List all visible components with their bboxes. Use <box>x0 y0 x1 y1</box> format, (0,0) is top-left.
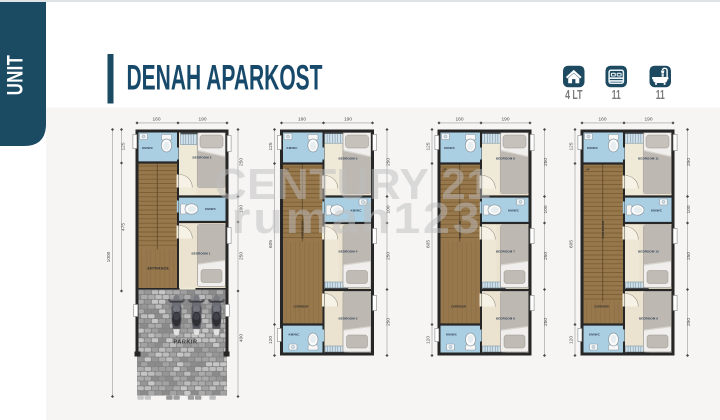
svg-text:120: 120 <box>426 336 432 344</box>
svg-text:CORRIDOR: CORRIDOR <box>594 305 609 309</box>
svg-text:250: 250 <box>686 158 692 166</box>
svg-text:190: 190 <box>344 117 352 123</box>
svg-text:KM/WC: KM/WC <box>289 333 301 337</box>
svg-text:100: 100 <box>686 205 692 213</box>
svg-text:4 LT: 4 LT <box>565 89 583 103</box>
svg-text:CORRIDOR: CORRIDOR <box>451 305 466 309</box>
svg-text:PARKIR: PARKIR <box>173 340 197 346</box>
svg-text:KM/WC: KM/WC <box>508 209 520 213</box>
svg-text:BEDROOM 7: BEDROOM 7 <box>496 250 515 254</box>
svg-text:160: 160 <box>152 117 160 123</box>
svg-text:KM/WC: KM/WC <box>287 146 299 150</box>
svg-text:BEDROOM 10: BEDROOM 10 <box>638 250 659 254</box>
svg-text:605: 605 <box>569 240 575 248</box>
svg-text:250: 250 <box>386 318 392 326</box>
svg-text:250: 250 <box>239 252 245 260</box>
svg-text:125: 125 <box>426 142 432 150</box>
svg-text:ENTRANCE: ENTRANCE <box>147 267 169 271</box>
svg-text:DENAH APARKOST: DENAH APARKOST <box>127 59 323 98</box>
svg-text:100: 100 <box>543 205 549 213</box>
svg-text:125: 125 <box>121 142 127 150</box>
svg-text:11: 11 <box>612 88 621 102</box>
svg-text:120: 120 <box>268 336 274 344</box>
svg-text:CORRIDOR: CORRIDOR <box>601 220 605 239</box>
svg-text:BEDROOM 2: BEDROOM 2 <box>192 156 211 160</box>
svg-text:11: 11 <box>656 88 665 102</box>
svg-text:1000: 1000 <box>106 251 112 262</box>
svg-text:KM/WC: KM/WC <box>444 146 456 150</box>
svg-text:CORRIDOR: CORRIDOR <box>294 305 309 309</box>
svg-text:250: 250 <box>543 318 549 326</box>
svg-text:UNIT: UNIT <box>3 55 28 95</box>
svg-text:250: 250 <box>686 252 692 260</box>
svg-text:BEDROOM 9: BEDROOM 9 <box>639 317 658 321</box>
svg-text:KM/WC: KM/WC <box>589 333 601 337</box>
svg-text:160: 160 <box>598 117 606 123</box>
svg-text:KM/WC: KM/WC <box>142 146 154 150</box>
svg-text:250: 250 <box>543 158 549 166</box>
svg-text:250: 250 <box>543 252 549 260</box>
svg-text:BEDROOM 11: BEDROOM 11 <box>638 157 659 161</box>
svg-text:BEDROOM 3: BEDROOM 3 <box>338 317 357 321</box>
svg-text:rumah123: rumah123 <box>232 193 483 242</box>
svg-text:KM/WC: KM/WC <box>651 209 663 213</box>
svg-text:KM/WC: KM/WC <box>587 146 599 150</box>
svg-text:190: 190 <box>501 117 509 123</box>
svg-text:250: 250 <box>386 252 392 260</box>
svg-text:160: 160 <box>455 117 463 123</box>
svg-text:190: 190 <box>198 117 206 123</box>
svg-text:UP: UP <box>585 168 589 172</box>
svg-text:BEDROOM 8: BEDROOM 8 <box>496 157 515 161</box>
svg-text:KM/WC: KM/WC <box>446 333 458 337</box>
svg-text:190: 190 <box>644 117 652 123</box>
svg-text:475: 475 <box>121 223 127 231</box>
svg-text:125: 125 <box>569 142 575 150</box>
svg-text:BEDROOM 1: BEDROOM 1 <box>191 252 210 256</box>
svg-text:BEDROOM 4: BEDROOM 4 <box>338 250 357 254</box>
svg-text:125: 125 <box>268 142 274 150</box>
svg-text:BEDROOM 6: BEDROOM 6 <box>496 317 515 321</box>
svg-text:250: 250 <box>686 318 692 326</box>
svg-text:120: 120 <box>569 336 575 344</box>
svg-text:160: 160 <box>298 117 306 123</box>
svg-text:400: 400 <box>239 334 245 342</box>
